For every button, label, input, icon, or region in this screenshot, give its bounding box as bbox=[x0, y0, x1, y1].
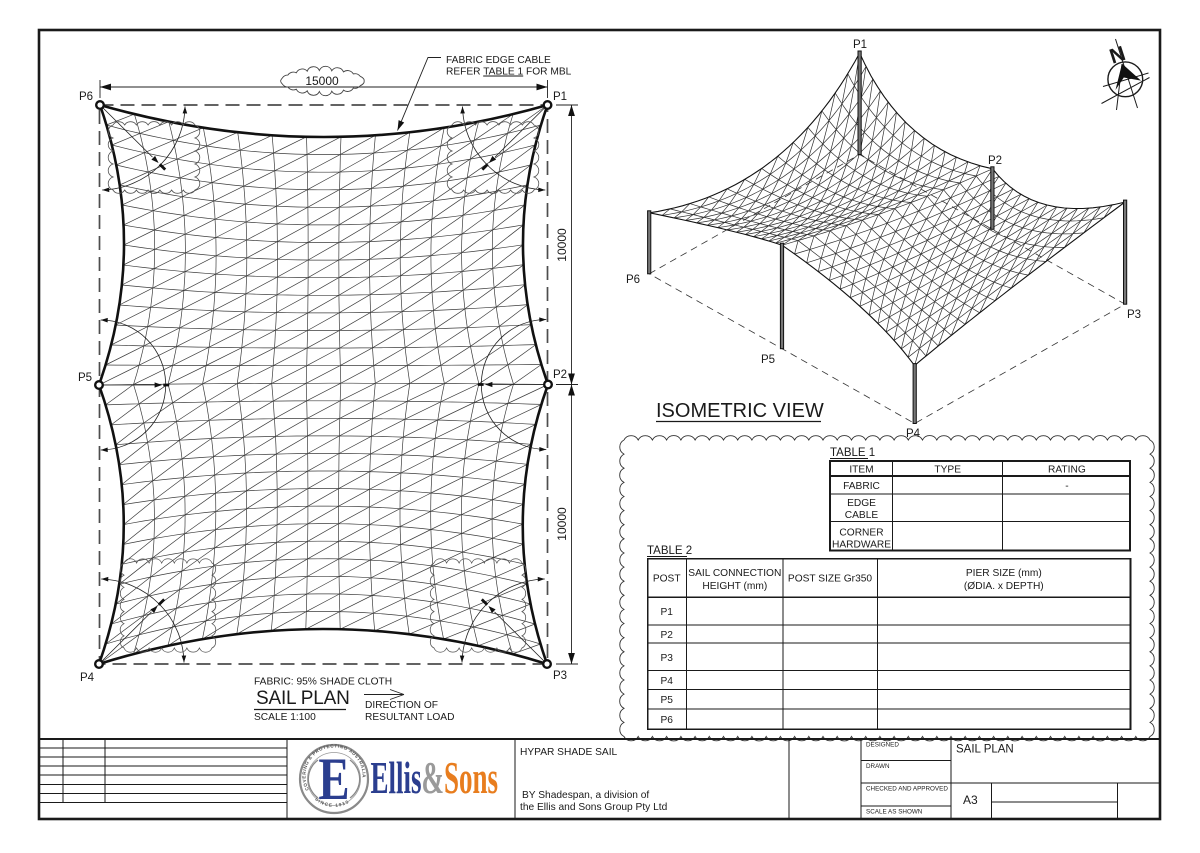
svg-text:E: E bbox=[318, 745, 349, 812]
svg-text:TABLE 1: TABLE 1 bbox=[830, 447, 875, 459]
svg-text:P6: P6 bbox=[79, 91, 93, 103]
svg-text:-: - bbox=[1065, 481, 1068, 492]
svg-text:P4: P4 bbox=[906, 428, 921, 440]
svg-text:SAIL CONNECTION: SAIL CONNECTION bbox=[688, 568, 781, 579]
svg-text:PIER SIZE (mm): PIER SIZE (mm) bbox=[966, 568, 1042, 579]
svg-text:HEIGHT (mm): HEIGHT (mm) bbox=[702, 581, 767, 592]
svg-text:A3: A3 bbox=[963, 793, 978, 807]
svg-text:BY Shadespan, a division of: BY Shadespan, a division of bbox=[522, 790, 649, 801]
svg-text:P2: P2 bbox=[988, 155, 1002, 167]
svg-text:Ellis&Sons: Ellis&Sons bbox=[371, 754, 499, 804]
svg-text:EDGE: EDGE bbox=[847, 498, 876, 509]
svg-text:P4: P4 bbox=[80, 672, 95, 684]
svg-text:P6: P6 bbox=[626, 274, 640, 286]
svg-text:CORNER: CORNER bbox=[839, 528, 883, 539]
svg-text:ISOMETRIC VIEW: ISOMETRIC VIEW bbox=[656, 400, 824, 422]
svg-text:P1: P1 bbox=[853, 39, 867, 51]
svg-text:P3: P3 bbox=[1127, 309, 1141, 321]
svg-text:P3: P3 bbox=[660, 653, 673, 664]
svg-text:P5: P5 bbox=[761, 354, 775, 366]
svg-text:SCALE 1:100: SCALE 1:100 bbox=[254, 712, 316, 723]
svg-text:P6: P6 bbox=[660, 715, 673, 726]
svg-text:HARDWARE: HARDWARE bbox=[832, 540, 891, 551]
svg-text:SAIL PLAN: SAIL PLAN bbox=[256, 688, 350, 709]
svg-text:POST: POST bbox=[653, 574, 681, 585]
svg-text:SCALE AS SHOWN: SCALE AS SHOWN bbox=[866, 808, 923, 815]
svg-text:REFER TABLE 1 FOR MBL: REFER TABLE 1 FOR MBL bbox=[446, 67, 572, 78]
svg-text:FABRIC: 95% SHADE CLOTH: FABRIC: 95% SHADE CLOTH bbox=[254, 677, 392, 688]
svg-text:FABRIC: FABRIC bbox=[843, 481, 880, 492]
svg-text:CABLE: CABLE bbox=[845, 510, 879, 521]
svg-text:RATING: RATING bbox=[1048, 465, 1086, 476]
svg-text:P5: P5 bbox=[660, 695, 673, 706]
svg-text:P2: P2 bbox=[660, 630, 673, 641]
svg-text:TABLE 2: TABLE 2 bbox=[647, 545, 692, 557]
svg-text:P5: P5 bbox=[78, 372, 92, 384]
svg-text:SAIL PLAN: SAIL PLAN bbox=[956, 744, 1014, 756]
svg-text:the Ellis and Sons Group Pty L: the Ellis and Sons Group Pty Ltd bbox=[520, 802, 668, 813]
svg-text:ITEM: ITEM bbox=[849, 465, 873, 476]
svg-text:CHECKED AND APPROVED: CHECKED AND APPROVED bbox=[866, 785, 948, 792]
svg-text:DRAWN: DRAWN bbox=[866, 763, 890, 770]
svg-text:P4: P4 bbox=[660, 676, 673, 687]
svg-text:10000: 10000 bbox=[555, 507, 569, 541]
svg-text:TYPE: TYPE bbox=[934, 465, 961, 476]
svg-text:POST SIZE Gr350: POST SIZE Gr350 bbox=[788, 574, 873, 585]
svg-text:DIRECTION OF: DIRECTION OF bbox=[365, 700, 438, 711]
svg-text:P1: P1 bbox=[660, 607, 673, 618]
svg-text:P1: P1 bbox=[553, 91, 567, 103]
svg-text:P2: P2 bbox=[553, 369, 567, 381]
svg-text:FABRIC EDGE CABLE: FABRIC EDGE CABLE bbox=[446, 55, 551, 66]
svg-text:HYPAR SHADE SAIL: HYPAR SHADE SAIL bbox=[520, 747, 618, 758]
svg-text:P3: P3 bbox=[553, 670, 567, 682]
svg-text:DESIGNED: DESIGNED bbox=[866, 742, 899, 749]
svg-text:10000: 10000 bbox=[555, 228, 569, 262]
svg-text:(ØDIA. x DEPTH): (ØDIA. x DEPTH) bbox=[964, 581, 1044, 592]
svg-text:15000: 15000 bbox=[305, 74, 339, 88]
svg-text:RESULTANT LOAD: RESULTANT LOAD bbox=[365, 712, 454, 723]
